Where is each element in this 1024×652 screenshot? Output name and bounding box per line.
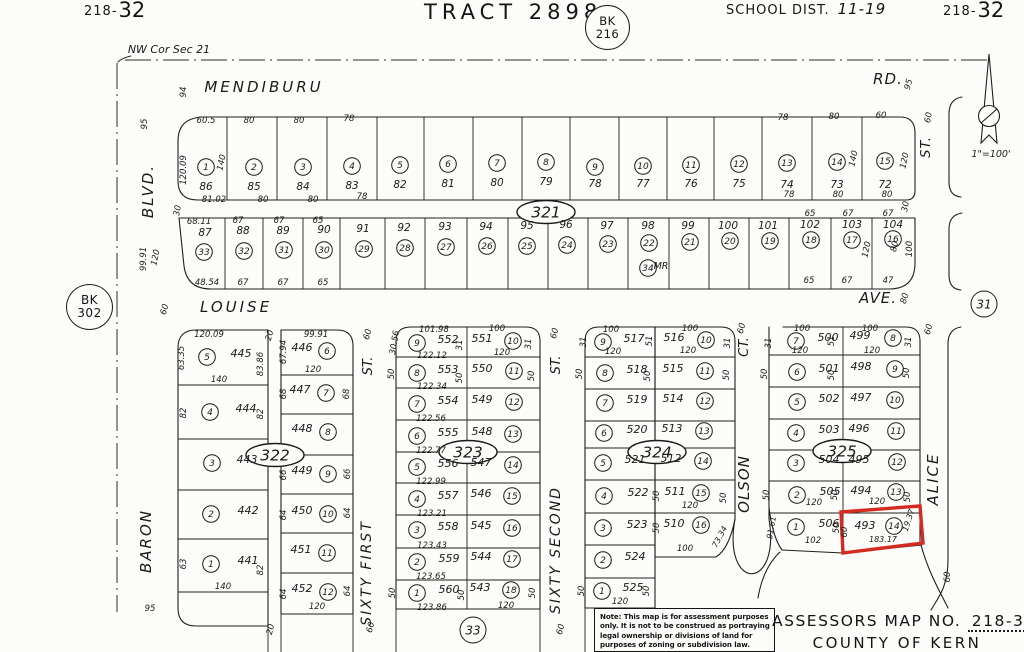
svg-text:34: 34 — [642, 264, 654, 274]
dim-label: 120 — [494, 348, 510, 358]
dim-label: 64 — [343, 508, 353, 519]
assessor-number: 218-32 — [968, 612, 1024, 632]
svg-text:10: 10 — [507, 337, 519, 347]
lot-number: 79 — [539, 176, 553, 188]
dim-label: 122.77 — [416, 446, 446, 456]
dim-label: 30 — [172, 204, 184, 216]
dim-label: 67.94 — [279, 340, 289, 364]
lot-number: 494 — [851, 484, 872, 497]
dim-label: 50 — [527, 371, 537, 382]
lot-circle: 32 — [236, 243, 253, 260]
dim-label: 80 — [244, 116, 255, 126]
svg-text:2: 2 — [600, 556, 606, 566]
lot-circle: 15 — [504, 488, 521, 505]
street-label: SIXTY SECOND — [548, 486, 564, 614]
dim-label: 140 — [847, 150, 860, 168]
lot-circle: 11 — [319, 545, 336, 562]
dim-label: 68 — [342, 388, 352, 399]
dim-label: 80 — [258, 195, 269, 205]
lot-circle: 5 — [595, 455, 612, 472]
lot-number: 549 — [472, 393, 493, 406]
lot-circle: 3 — [788, 455, 805, 472]
dim-label: 67 — [238, 278, 249, 288]
lot-number: 104 — [883, 219, 903, 231]
sheet-prefix: 218- — [84, 4, 118, 19]
lot-circle: 7 — [489, 155, 506, 172]
lot-number: 504 — [819, 453, 840, 466]
dim-label: 120 — [498, 601, 514, 611]
dim-label: 31 — [579, 337, 589, 348]
lot-number: 517 — [624, 332, 645, 345]
svg-text:2: 2 — [414, 558, 420, 568]
dim-label: 95 — [140, 119, 150, 130]
svg-text:14: 14 — [507, 461, 519, 471]
lot-number: 93 — [438, 221, 451, 233]
lot-circle: 12 — [697, 393, 714, 410]
dim-label: 100 — [905, 241, 915, 257]
lot-circle: 10 — [320, 506, 337, 523]
dim-label: 30.56 — [388, 329, 402, 355]
dim-label: 120 — [864, 346, 880, 356]
lot-circle: 5 — [409, 459, 426, 476]
lot-number: 92 — [397, 222, 411, 234]
street-label: ST. — [549, 356, 564, 375]
lot-circle: 2 — [789, 487, 806, 504]
lot-number: 84 — [296, 181, 309, 193]
lot-number: 81 — [441, 178, 454, 190]
lot-number: 518 — [627, 363, 648, 376]
olson-culdesac-bulb — [733, 519, 771, 574]
dim-label: 120 — [305, 365, 321, 375]
dim-label: 31 — [904, 337, 914, 348]
svg-text:4: 4 — [414, 495, 420, 505]
lot-number: 97 — [600, 220, 614, 232]
svg-text:3: 3 — [793, 459, 799, 469]
lot-circle: 6 — [596, 425, 613, 442]
corner-leader-line — [118, 56, 131, 62]
lot-circle: 20 — [722, 233, 739, 250]
street-label: AVE. — [858, 289, 897, 307]
dim-label: 20 — [264, 329, 276, 342]
street-label: BLVD. — [139, 164, 157, 218]
lot-circle: 15 — [877, 153, 894, 170]
lot-circle: 4 — [344, 158, 361, 175]
svg-text:8: 8 — [602, 369, 608, 379]
svg-text:11: 11 — [685, 161, 696, 171]
dim-label: 60 — [923, 111, 935, 123]
lot-number: 85 — [247, 181, 261, 193]
svg-text:322: 322 — [260, 447, 290, 465]
svg-text:22: 22 — [643, 239, 655, 249]
lot-number: 503 — [819, 423, 840, 436]
dim-label: 83.86 — [256, 351, 266, 376]
street-label: ST. — [919, 136, 934, 158]
svg-text:5: 5 — [414, 463, 420, 473]
county-line: COUNTY OF KERN — [772, 634, 1022, 652]
dim-label: 122.99 — [416, 477, 446, 487]
lot-number: 452 — [292, 582, 313, 595]
lot-number: 94 — [479, 221, 492, 233]
lot-number: 80 — [490, 177, 504, 189]
dim-label: 47 — [883, 276, 894, 286]
lot-circle: 8 — [538, 154, 555, 171]
lot-circle: 16 — [693, 517, 710, 534]
svg-text:2: 2 — [794, 491, 800, 501]
lot-number: 77 — [636, 178, 650, 190]
svg-text:321: 321 — [531, 204, 561, 222]
svg-text:8: 8 — [890, 334, 896, 344]
page-title: TRACT 2898 — [424, 0, 602, 24]
street-label: ALICE — [924, 453, 942, 507]
lot-circle: 28 — [397, 240, 414, 257]
school-district-label: SCHOOL DIST. — [726, 3, 830, 18]
lot-number: 546 — [471, 487, 492, 500]
svg-text:5: 5 — [204, 353, 210, 363]
dim-label: 122.12 — [417, 351, 447, 361]
svg-text:9: 9 — [414, 339, 420, 349]
lot-number: 78 — [588, 178, 602, 190]
assessor-label: ASSESSORS MAP NO. — [772, 612, 961, 630]
svg-text:30: 30 — [318, 246, 330, 256]
lot-number: 449 — [292, 464, 313, 477]
svg-text:12: 12 — [733, 160, 745, 170]
lot-number: 554 — [438, 394, 459, 407]
lot-circle: 1 — [203, 556, 220, 573]
lot-circle: 6 — [789, 364, 806, 381]
dim-label: 50 — [528, 588, 538, 599]
lot-circle: 3 — [204, 455, 221, 472]
lot-circle: 11 — [888, 423, 905, 440]
dim-label: 50 — [762, 490, 772, 501]
lot-number: 495 — [849, 453, 870, 466]
dim-label: 122.34 — [417, 382, 447, 392]
dim-label: 123.21 — [417, 509, 447, 519]
lot-circle: 23 — [600, 236, 617, 253]
svg-text:33: 33 — [198, 248, 210, 258]
lot-circle: 1 — [198, 159, 215, 176]
dim-label: 95 — [145, 604, 156, 614]
book-badge-216: BK 216 — [585, 5, 630, 50]
dim-label: 65 — [805, 209, 816, 219]
lot-circle: 8 — [597, 365, 614, 382]
sheet-num: 32 — [119, 2, 146, 19]
dim-label: 78 — [784, 190, 795, 200]
dim-label: 80 — [308, 195, 319, 205]
street-label: CT. — [737, 337, 752, 357]
note-line-2: only. It is not to be construed as portr… — [600, 621, 770, 630]
lot-circle: 6 — [409, 428, 426, 445]
lot-circle: 33 — [196, 244, 213, 261]
lot-circle: 5 — [199, 349, 216, 366]
dim-label: 50 — [902, 368, 912, 379]
svg-text:15: 15 — [695, 489, 707, 499]
lot-number: 544 — [471, 550, 492, 563]
dim-label: 82 — [256, 409, 266, 420]
dim-label: 50 — [575, 369, 585, 380]
lot-circle: 1 — [788, 519, 805, 536]
svg-text:16: 16 — [506, 524, 518, 534]
svg-text:7: 7 — [414, 400, 420, 410]
svg-text:6: 6 — [794, 368, 800, 378]
svg-text:12: 12 — [322, 588, 334, 598]
dim-label: 66 — [343, 468, 353, 479]
svg-text:15: 15 — [879, 157, 891, 167]
dim-label: 120.09 — [194, 330, 224, 340]
svg-text:2: 2 — [208, 510, 214, 520]
dim-label: 82 — [256, 565, 266, 576]
lot-circle: 8 — [409, 365, 426, 382]
dim-label: 78 — [778, 113, 789, 123]
dim-label: 64 — [279, 589, 289, 600]
svg-text:31: 31 — [976, 297, 991, 311]
dim-label: 31 — [764, 338, 774, 349]
dim-label: 122.56 — [416, 414, 446, 424]
dim-label: 67 — [883, 209, 894, 219]
svg-text:1: 1 — [599, 587, 605, 597]
lot-circle: 12 — [320, 584, 337, 601]
dim-label: 140 — [215, 582, 231, 592]
lot-number: 545 — [471, 519, 492, 532]
dim-label: 123.86 — [417, 603, 447, 613]
lot-circle: 10 — [698, 332, 715, 349]
svg-text:3: 3 — [414, 526, 420, 536]
dim-label: 50 — [642, 586, 652, 597]
svg-text:27: 27 — [440, 243, 452, 253]
dim-label: 50 — [652, 523, 662, 534]
svg-text:13: 13 — [781, 159, 793, 169]
dim-label: 82 — [179, 408, 189, 419]
dim-label: 80 — [294, 116, 305, 126]
lot-number: 445 — [231, 347, 252, 360]
dim-label: 99.91 — [139, 247, 149, 271]
lot-circle: 3 — [295, 159, 312, 176]
lot-circle: 18 — [803, 232, 820, 249]
lot-circle: 30 — [316, 242, 333, 259]
dim-label: 80 — [829, 112, 840, 122]
svg-text:15: 15 — [506, 492, 518, 502]
lot-circle: 1 — [594, 583, 611, 600]
dim-label: 120 — [605, 347, 621, 357]
lot-circle: 17 — [504, 551, 521, 568]
lot-circle: 15 — [693, 485, 710, 502]
svg-text:10: 10 — [637, 162, 649, 172]
lot-number: 102 — [800, 219, 820, 231]
reference-circle: 31 — [971, 291, 997, 317]
dim-label: 19.37 — [901, 507, 917, 532]
svg-text:10: 10 — [700, 336, 712, 346]
lot-number: 520 — [627, 423, 648, 436]
bk302-line2: 302 — [77, 307, 101, 320]
svg-text:13: 13 — [698, 427, 710, 437]
lot-circle: 8 — [885, 330, 902, 347]
dim-label: 60 — [362, 328, 374, 341]
street-curve-below-bulb — [758, 552, 780, 598]
lot-circle: 14 — [695, 453, 712, 470]
lot-circle: 31 — [276, 242, 293, 259]
dim-label: 50 — [577, 586, 587, 597]
lot-number: 497 — [851, 391, 872, 404]
dim-label: 78 — [357, 192, 368, 202]
dim-label: 63 — [179, 559, 189, 570]
lot-number: 552 — [438, 333, 459, 346]
lot-circles: 1234567891011121314153332313029282726252… — [196, 153, 997, 643]
lot-number: 89 — [276, 225, 290, 237]
lot-number: 447 — [290, 383, 311, 396]
note-line-1: Note: This map is for assessment purpose… — [600, 612, 770, 621]
lot-circle: 4 — [596, 488, 613, 505]
svg-text:9: 9 — [892, 365, 898, 375]
dim-label: 60 — [923, 323, 935, 336]
lot-circle: 4 — [202, 404, 219, 421]
lot-circle: 9 — [320, 466, 337, 483]
dim-label: 65 — [318, 278, 329, 288]
dim-label: 67 — [842, 276, 853, 286]
svg-text:33: 33 — [465, 623, 480, 637]
dim-label: 91.61 — [765, 516, 778, 540]
lot-circle: 9 — [409, 335, 426, 352]
lot-number: 512 — [661, 452, 682, 465]
svg-text:32: 32 — [238, 247, 250, 257]
lot-number: 524 — [625, 550, 646, 563]
dim-label: 63.35 — [177, 346, 187, 370]
note-line-3: legal ownership or divisions of land for — [600, 631, 770, 640]
lot-circle: 27 — [438, 239, 455, 256]
svg-text:16: 16 — [695, 521, 707, 531]
svg-text:4: 4 — [349, 162, 355, 172]
lot-number: 451 — [291, 543, 312, 556]
street-label: ST. — [361, 357, 376, 376]
lot-number: 498 — [851, 360, 872, 373]
lot-number: 516 — [664, 331, 685, 344]
book-badge-line1: BK — [599, 15, 615, 28]
dim-label: 50 — [652, 491, 662, 502]
dim-label: 120 — [792, 346, 808, 356]
dim-label: 80 — [833, 190, 844, 200]
svg-text:7: 7 — [323, 389, 329, 399]
dim-label: 95 — [903, 78, 915, 91]
dim-label: 102 — [805, 536, 821, 546]
dim-label: 120 — [149, 249, 162, 267]
lot-circle: 17 — [844, 232, 861, 249]
dim-label: 94 — [179, 87, 189, 98]
svg-text:21: 21 — [684, 238, 695, 248]
svg-text:24: 24 — [561, 241, 573, 251]
lot-circle: 14 — [829, 154, 846, 171]
dim-label: 60 — [876, 111, 887, 121]
lot-number: 522 — [628, 486, 649, 499]
lot-circle: 5 — [392, 157, 409, 174]
lot-number: 525 — [623, 581, 644, 594]
lot-circle: 24 — [559, 237, 576, 254]
dim-label: 50 — [457, 590, 467, 601]
svg-text:1: 1 — [793, 523, 799, 533]
dim-label: 67 — [278, 278, 289, 288]
lot-number: 523 — [627, 518, 648, 531]
lot-number: 557 — [438, 489, 459, 502]
sheet-prefix: 218- — [943, 4, 977, 19]
svg-text:3: 3 — [300, 163, 306, 173]
lot-number: 448 — [292, 422, 313, 435]
lot-number: 83 — [345, 180, 358, 192]
lot-number: 555 — [438, 426, 459, 439]
svg-text:8: 8 — [325, 428, 331, 438]
lot-number: 543 — [470, 581, 491, 594]
corner-note: NW Cor Sec 21 — [128, 43, 210, 56]
lot-circle: 10 — [887, 392, 904, 409]
lot-circle: 8 — [320, 424, 337, 441]
lot-number: 91 — [356, 223, 369, 235]
lot-number: 446 — [292, 341, 313, 354]
lot-number: 99 — [681, 220, 695, 232]
lot-circle: 10 — [505, 333, 522, 350]
dim-label: 60 — [365, 621, 377, 634]
dim-label: 120 — [680, 346, 696, 356]
dim-label: 68 — [279, 388, 289, 399]
svg-text:4: 4 — [793, 429, 799, 439]
svg-text:26: 26 — [481, 242, 493, 252]
lot-circle: 7 — [318, 385, 335, 402]
dim-label: 48.54 — [195, 278, 219, 288]
parcel-map: 321322323324325 123456789101112131415333… — [0, 0, 1024, 652]
street-label: RD. — [873, 70, 903, 88]
lot-circle: 1 — [409, 585, 426, 602]
lot-number: 521 — [625, 453, 646, 466]
dim-label: 60 — [736, 322, 748, 335]
lot-number: 98 — [641, 220, 655, 232]
lot-circle: 29 — [356, 241, 373, 258]
lot-circle: 3 — [595, 520, 612, 537]
svg-text:3: 3 — [600, 524, 606, 534]
north-arrow-icon — [979, 54, 1000, 143]
dim-label: 51 — [645, 336, 655, 347]
svg-text:6: 6 — [601, 429, 607, 439]
lot-circle: 11 — [683, 157, 700, 174]
lot-number: 559 — [439, 552, 460, 565]
dim-label: 66 — [279, 469, 289, 480]
lot-circle: 25 — [519, 238, 536, 255]
svg-text:4: 4 — [207, 408, 213, 418]
lot-circle: 4 — [409, 491, 426, 508]
lot-number: 499 — [850, 329, 871, 342]
dim-label: 68.11 — [187, 217, 211, 227]
lot-number: 450 — [292, 504, 313, 517]
svg-text:10: 10 — [889, 396, 901, 406]
svg-text:11: 11 — [321, 549, 332, 559]
dim-label: 120 — [869, 497, 885, 507]
dim-label: 67 — [843, 209, 854, 219]
lot-circle: 12 — [731, 156, 748, 173]
dim-label: 99.91 — [304, 330, 328, 340]
east-street-bracket-1 — [949, 97, 962, 197]
lot-number: 502 — [819, 392, 840, 405]
svg-text:4: 4 — [601, 492, 607, 502]
svg-text:20: 20 — [724, 237, 736, 247]
svg-text:18: 18 — [805, 236, 817, 246]
dim-label: 50 — [719, 493, 729, 504]
lot-number: 76 — [684, 178, 698, 190]
svg-text:6: 6 — [414, 432, 420, 442]
lot-number: 547 — [471, 456, 492, 469]
dim-label: 50 — [760, 369, 770, 380]
dim-label: 120 — [612, 597, 628, 607]
book-badge-line2: 216 — [596, 28, 619, 41]
lot-circle: 6 — [319, 343, 336, 360]
svg-text:2: 2 — [251, 163, 257, 173]
lot-circle: 10 — [635, 158, 652, 175]
lot-number: 496 — [849, 422, 870, 435]
sheet-number-left: 218- 32 — [84, 2, 145, 19]
lot-circle: 7 — [409, 396, 426, 413]
